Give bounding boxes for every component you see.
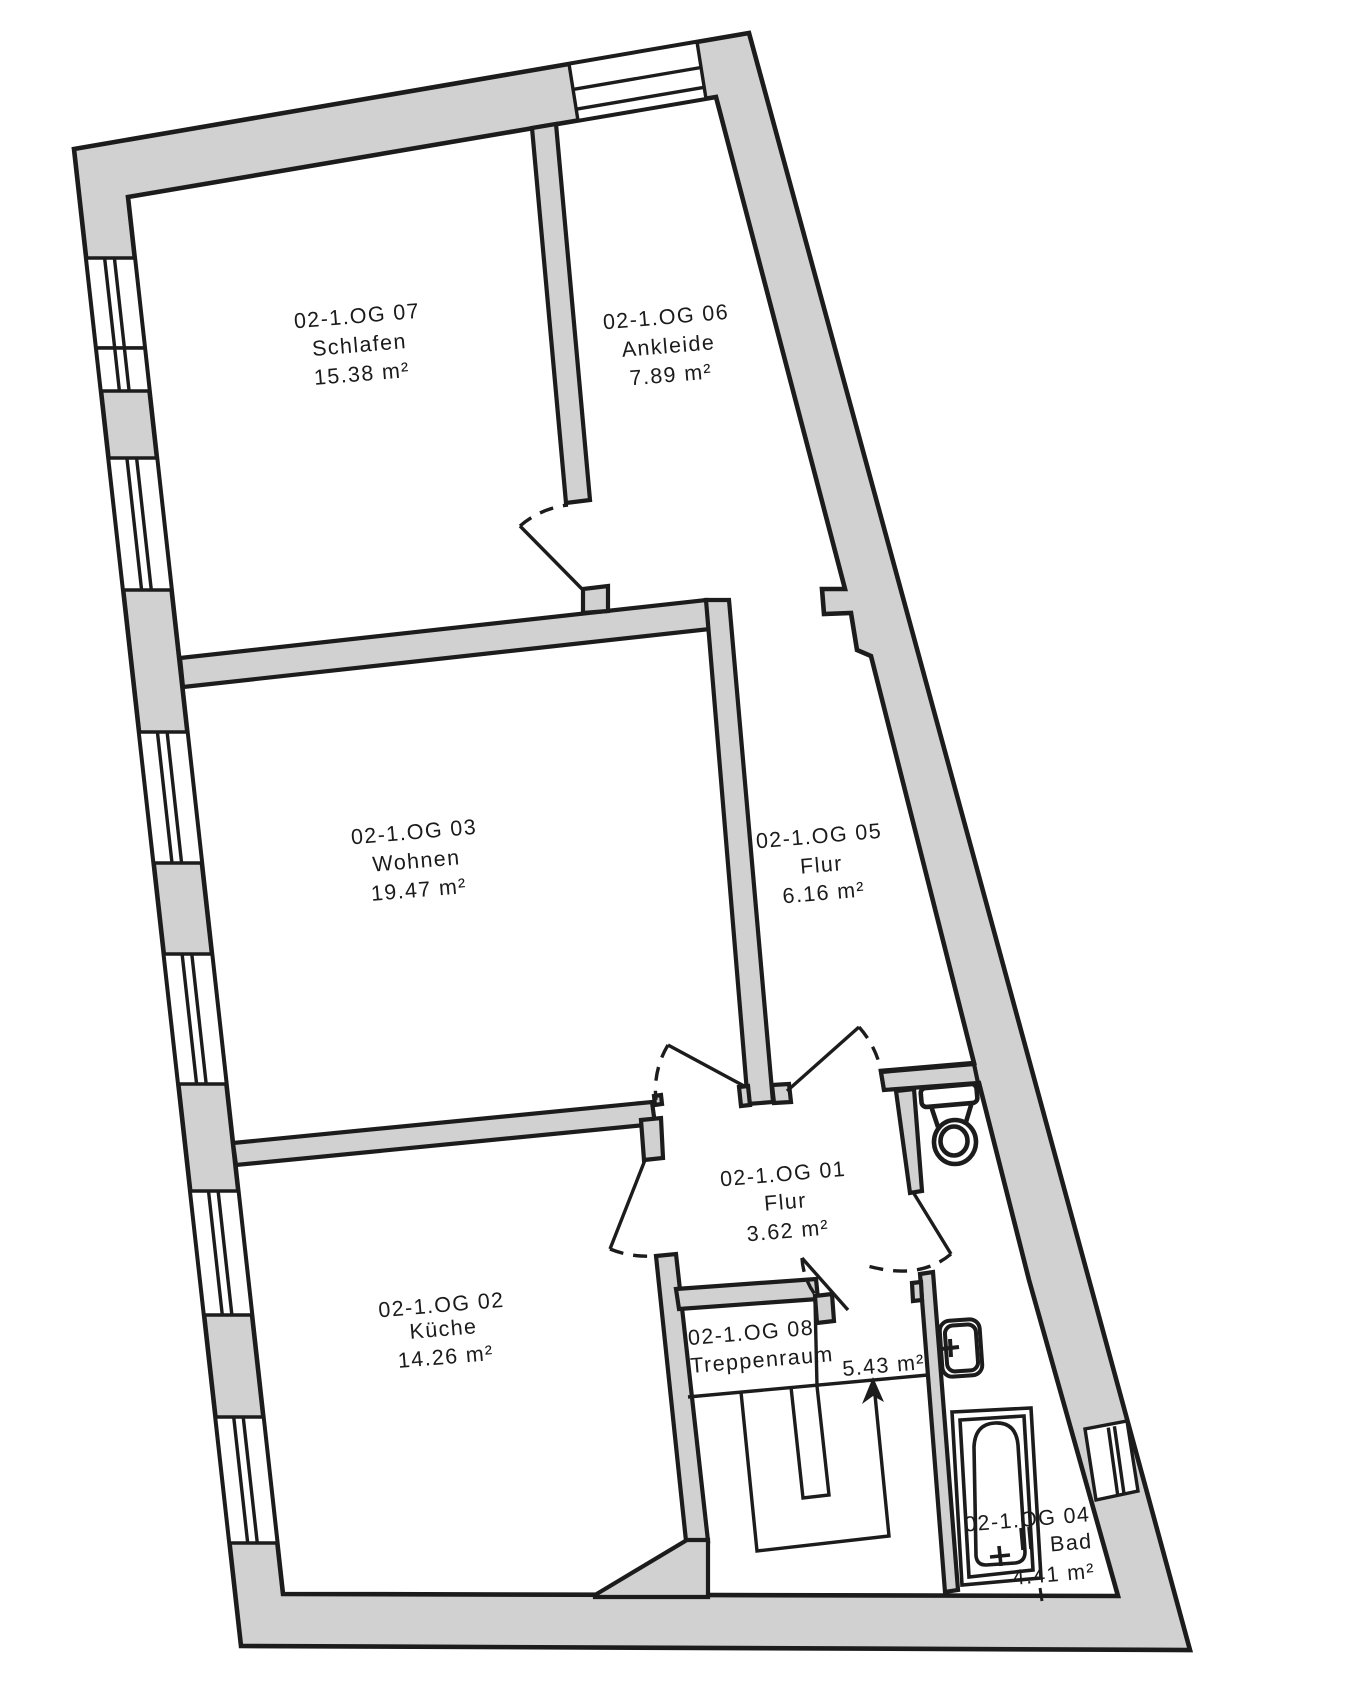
svg-text:Bad: Bad [1049, 1529, 1093, 1556]
svg-text:Flur: Flur [799, 851, 843, 878]
svg-text:Flur: Flur [763, 1188, 807, 1215]
